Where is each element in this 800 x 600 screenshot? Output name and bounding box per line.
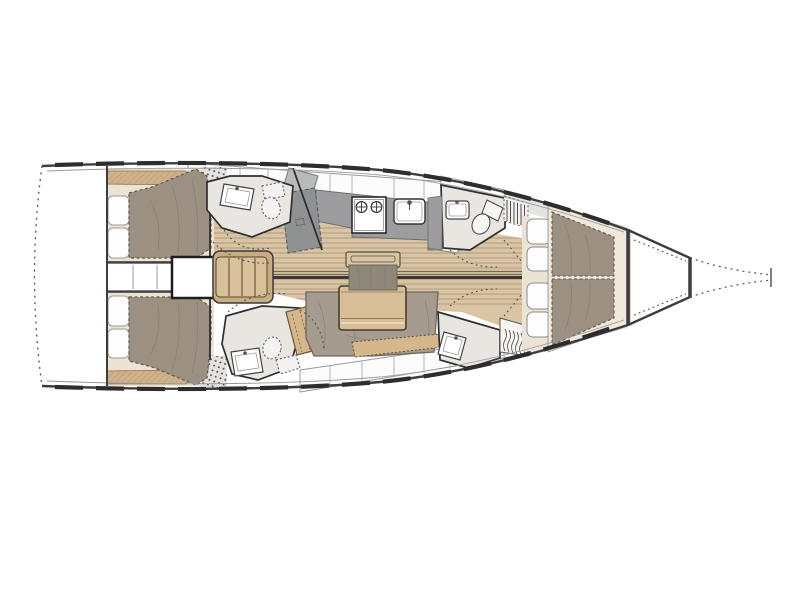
- pillow: [108, 196, 129, 225]
- washbasin: [220, 184, 254, 210]
- counter-end-wall: [428, 196, 442, 250]
- bench-cushion: [349, 265, 397, 290]
- pillow: [108, 329, 129, 358]
- seat-cushion: [527, 283, 551, 309]
- boat-floorplan-page: Sailboat interior layout — top-down deck…: [0, 0, 800, 600]
- seat-cushion: [527, 312, 551, 337]
- washbasin: [446, 200, 469, 219]
- seat-cushion: [527, 219, 551, 244]
- stove-burner: [371, 202, 382, 213]
- boat-floorplan-canvas: Sailboat interior layout — top-down deck…: [0, 0, 800, 600]
- stove: [352, 197, 386, 233]
- aft-cabin-starboard: [106, 292, 227, 388]
- washbasin: [231, 348, 263, 376]
- bowsprit-dotted-port: [690, 258, 771, 275]
- centerline-bench: [346, 252, 400, 290]
- bowsprit-dotted-starboard: [690, 280, 771, 297]
- stove-burner: [356, 202, 367, 213]
- under-cockpit-corridor: [107, 263, 172, 291]
- seat-cushion: [527, 247, 551, 271]
- pillow: [108, 228, 129, 258]
- forward-cabin: [504, 196, 630, 352]
- pillow: [108, 296, 129, 326]
- engine-compartment: [172, 257, 217, 298]
